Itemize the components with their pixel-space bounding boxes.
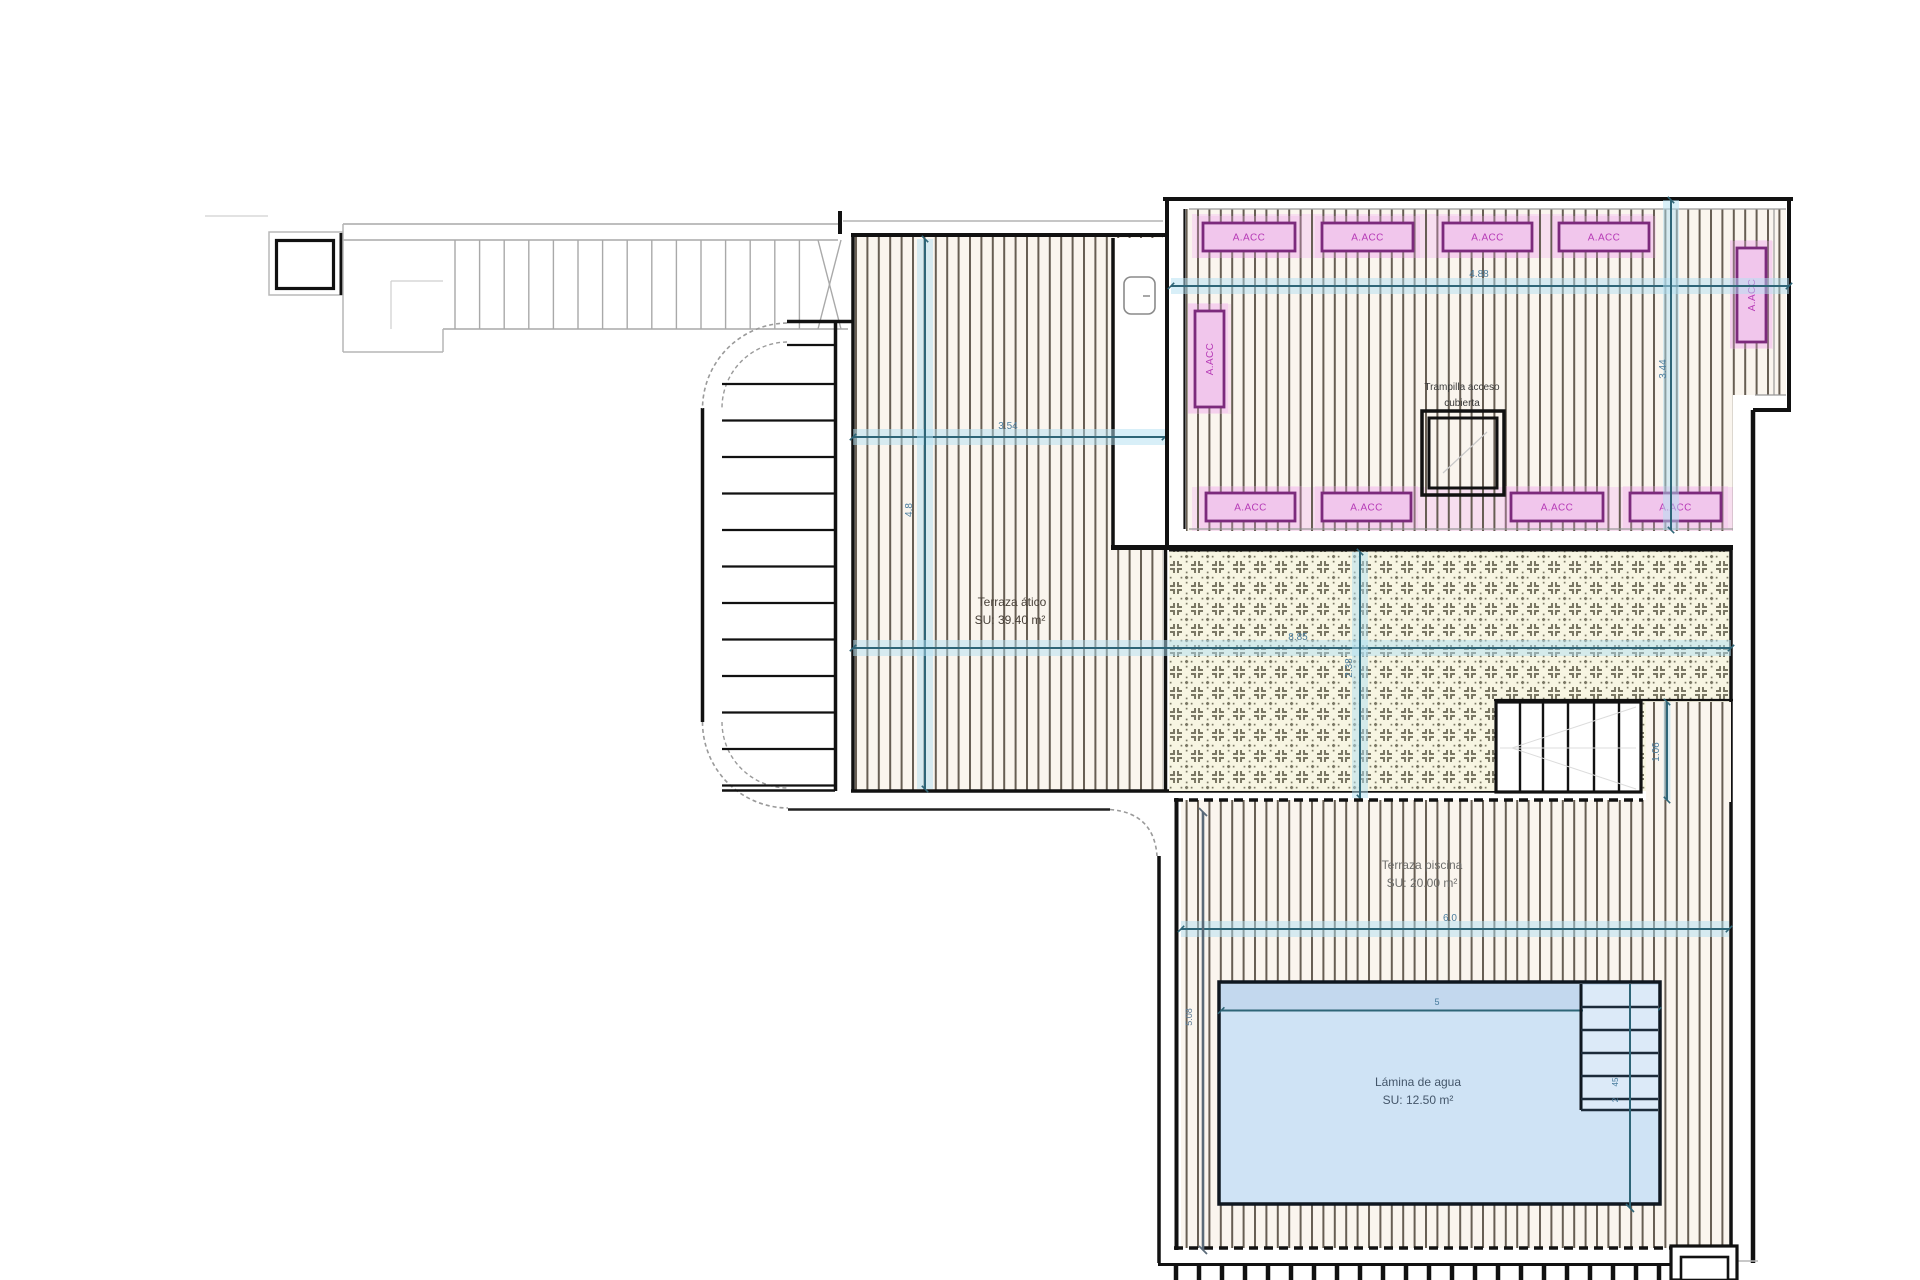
- svg-text:SU: 39.40 m²: SU: 39.40 m²: [975, 613, 1046, 627]
- svg-text:4.8: 4.8: [904, 503, 915, 517]
- svg-text:4.88: 4.88: [1469, 269, 1489, 280]
- svg-text:A.ACC: A.ACC: [1234, 503, 1267, 514]
- svg-text:Terraza ático: Terraza ático: [978, 595, 1047, 609]
- svg-text:1.06: 1.06: [1651, 742, 1662, 762]
- svg-text:Terraza piscina: Terraza piscina: [1382, 858, 1463, 872]
- svg-text:A.ACC: A.ACC: [1205, 343, 1216, 376]
- svg-text:2.38: 2.38: [1344, 658, 1355, 678]
- svg-text:SU: 12.50 m²: SU: 12.50 m²: [1383, 1093, 1454, 1107]
- svg-text:cubierta: cubierta: [1444, 398, 1480, 409]
- svg-text:3.54: 3.54: [998, 421, 1018, 432]
- svg-text:6.0: 6.0: [1443, 913, 1457, 924]
- svg-text:2: 2: [1611, 1097, 1620, 1102]
- svg-text:5: 5: [1434, 997, 1439, 1007]
- svg-text:A.ACC: A.ACC: [1351, 233, 1384, 244]
- svg-text:Lámina de agua: Lámina de agua: [1375, 1075, 1461, 1089]
- svg-text:45: 45: [1611, 1077, 1620, 1086]
- svg-text:A.ACC: A.ACC: [1588, 233, 1621, 244]
- svg-text:SU: 20.00 m²: SU: 20.00 m²: [1387, 876, 1458, 890]
- svg-text:A.ACC: A.ACC: [1350, 503, 1383, 514]
- svg-text:A.ACC: A.ACC: [1541, 503, 1574, 514]
- svg-text:Trampilla acceso: Trampilla acceso: [1424, 382, 1500, 393]
- svg-text:8.85: 8.85: [1288, 632, 1308, 643]
- svg-text:5.08: 5.08: [1184, 1008, 1194, 1026]
- svg-text:3.44: 3.44: [1658, 359, 1669, 379]
- svg-text:A.ACC: A.ACC: [1233, 233, 1266, 244]
- svg-text:A.ACC: A.ACC: [1471, 233, 1504, 244]
